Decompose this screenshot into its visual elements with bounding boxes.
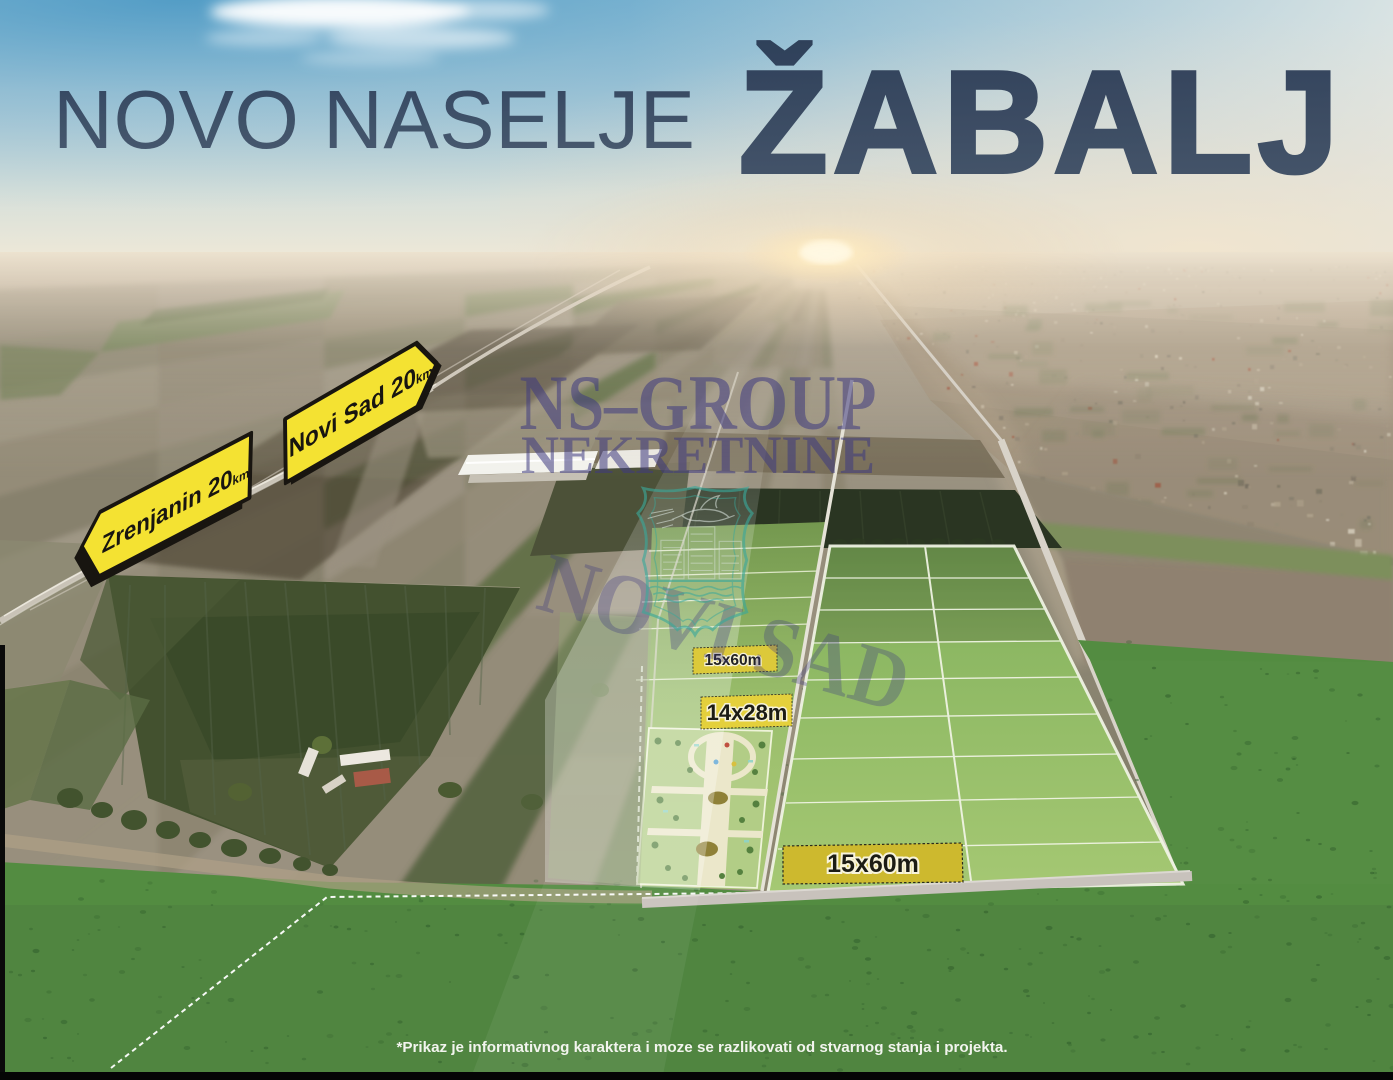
svg-text:14x28m: 14x28m [707, 700, 788, 725]
svg-text:NOVO NASELJE: NOVO NASELJE [53, 73, 696, 166]
svg-text:15x60m: 15x60m [827, 850, 919, 878]
svg-text:NEKRETNINE: NEKRETNINE [521, 425, 875, 485]
svg-text:*Prikaz je informativnog karak: *Prikaz je informativnog karaktera i moz… [396, 1039, 1007, 1056]
svg-text:ŽABALJ: ŽABALJ [739, 41, 1344, 203]
